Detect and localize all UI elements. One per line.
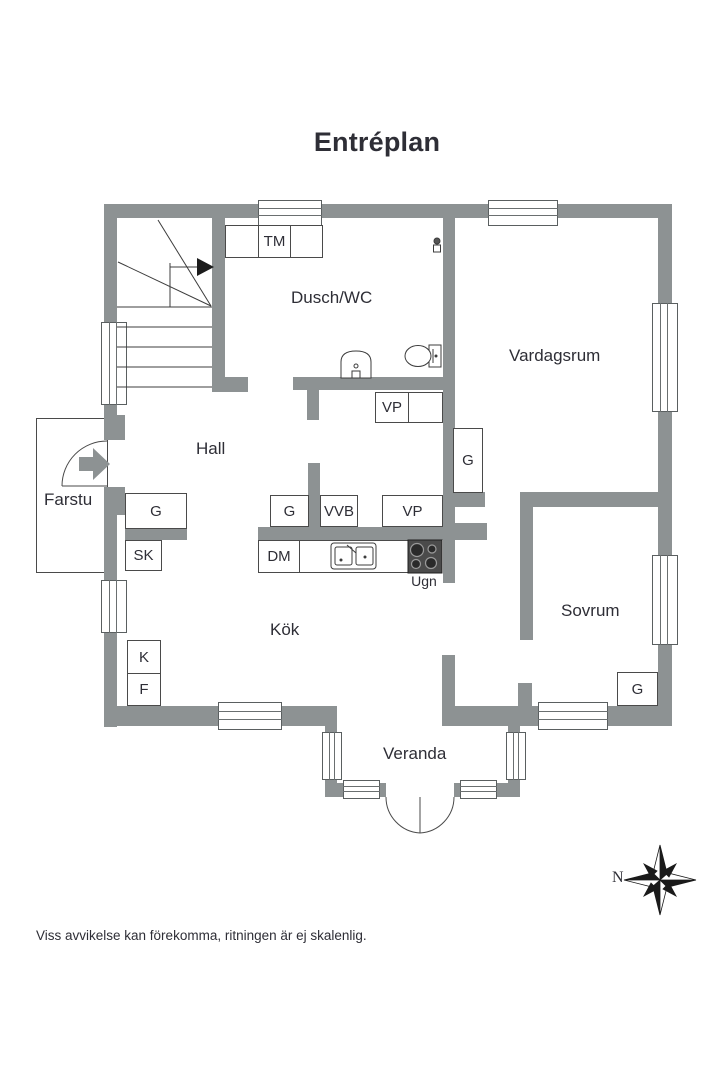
room-label-veranda: Veranda: [383, 744, 446, 764]
room-label-kok: Kök: [270, 620, 299, 640]
bathroom-sink-icon: [341, 351, 371, 378]
compass-north-label: N: [612, 869, 624, 887]
stove-icon: [408, 540, 442, 573]
room-label-vardagsrum: Vardagsrum: [509, 346, 600, 366]
floor-plan-page: Entréplan TM VP G G SK G VVB VP DM: [0, 0, 720, 1080]
disclaimer-text: Viss avvikelse kan förekomma, ritningen …: [36, 928, 367, 943]
room-label-sovrum: Sovrum: [561, 601, 620, 621]
oven-label: Ugn: [404, 573, 444, 589]
staircase: [117, 220, 214, 387]
toilet-icon: [405, 345, 441, 367]
compass-rose-icon: [624, 845, 696, 915]
shower-mixer-icon: [434, 238, 441, 252]
veranda-double-door-icon: [386, 797, 454, 833]
room-label-hall: Hall: [196, 439, 225, 459]
fixtures-layer: [0, 0, 720, 1080]
room-label-duschwc: Dusch/WC: [291, 288, 372, 308]
entry-arrow-icon: [79, 448, 110, 480]
kitchen-sink-icon: [331, 543, 376, 569]
room-label-farstu: Farstu: [44, 490, 92, 510]
stair-direction-arrow-icon: [197, 258, 214, 276]
